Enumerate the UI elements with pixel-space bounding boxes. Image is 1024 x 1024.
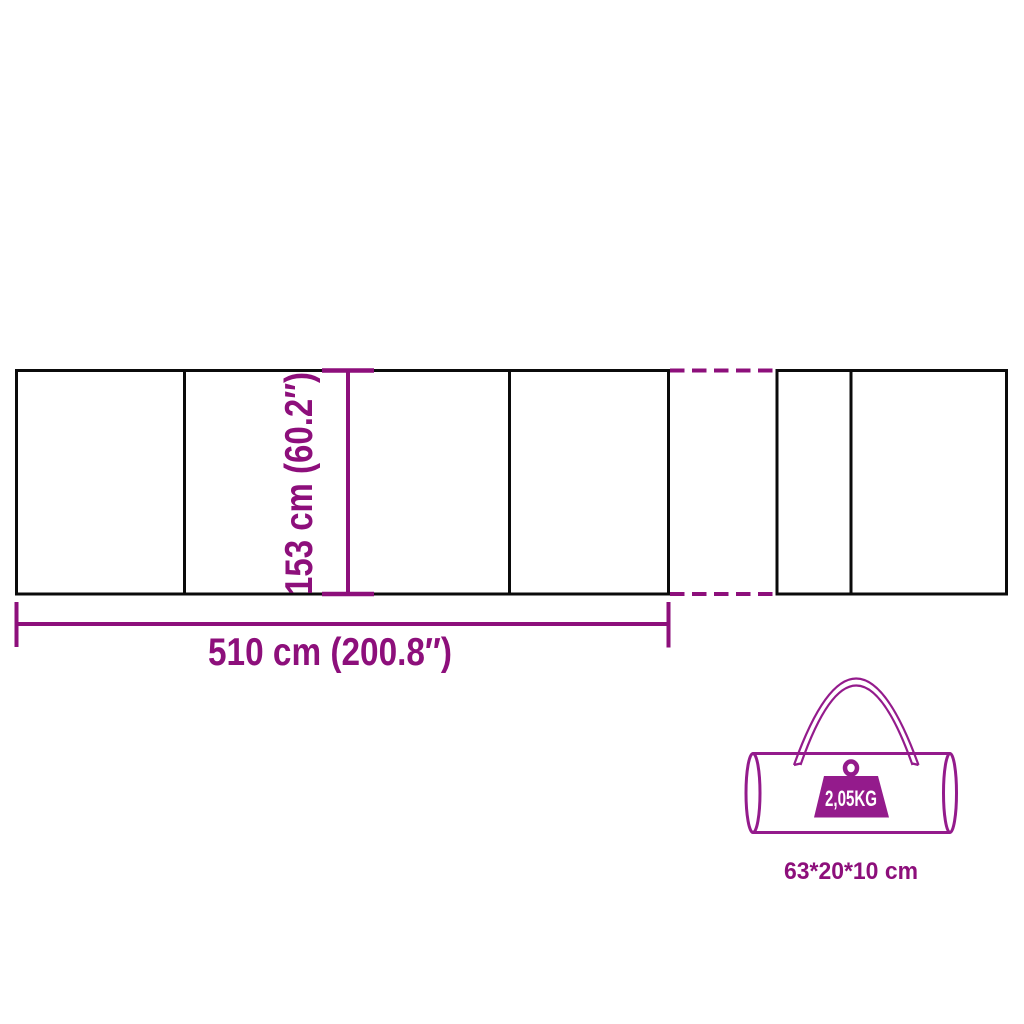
svg-text:63*20*10 cm: 63*20*10 cm: [784, 858, 918, 885]
svg-text:2,05KG: 2,05KG: [825, 786, 877, 811]
svg-text:153 cm (60.2″): 153 cm (60.2″): [278, 372, 321, 595]
svg-text:510 cm (200.8″): 510 cm (200.8″): [208, 631, 452, 674]
